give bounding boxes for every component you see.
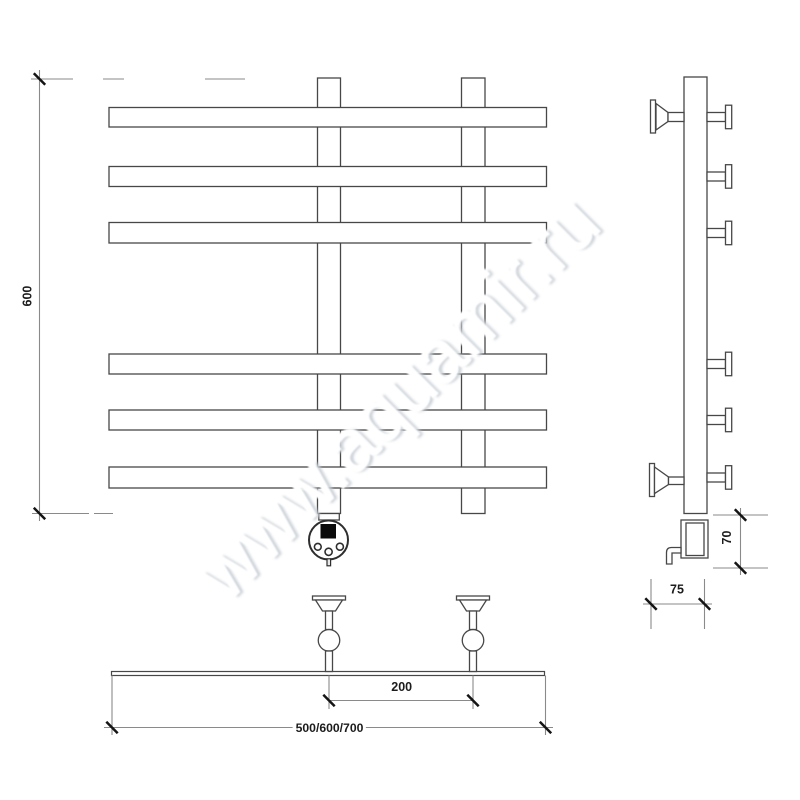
- svg-text:70: 70: [720, 531, 734, 545]
- svg-text:500/600/700: 500/600/700: [296, 721, 364, 735]
- svg-text:600: 600: [21, 286, 35, 307]
- svg-text:75: 75: [670, 583, 684, 597]
- svg-text:200: 200: [391, 680, 412, 694]
